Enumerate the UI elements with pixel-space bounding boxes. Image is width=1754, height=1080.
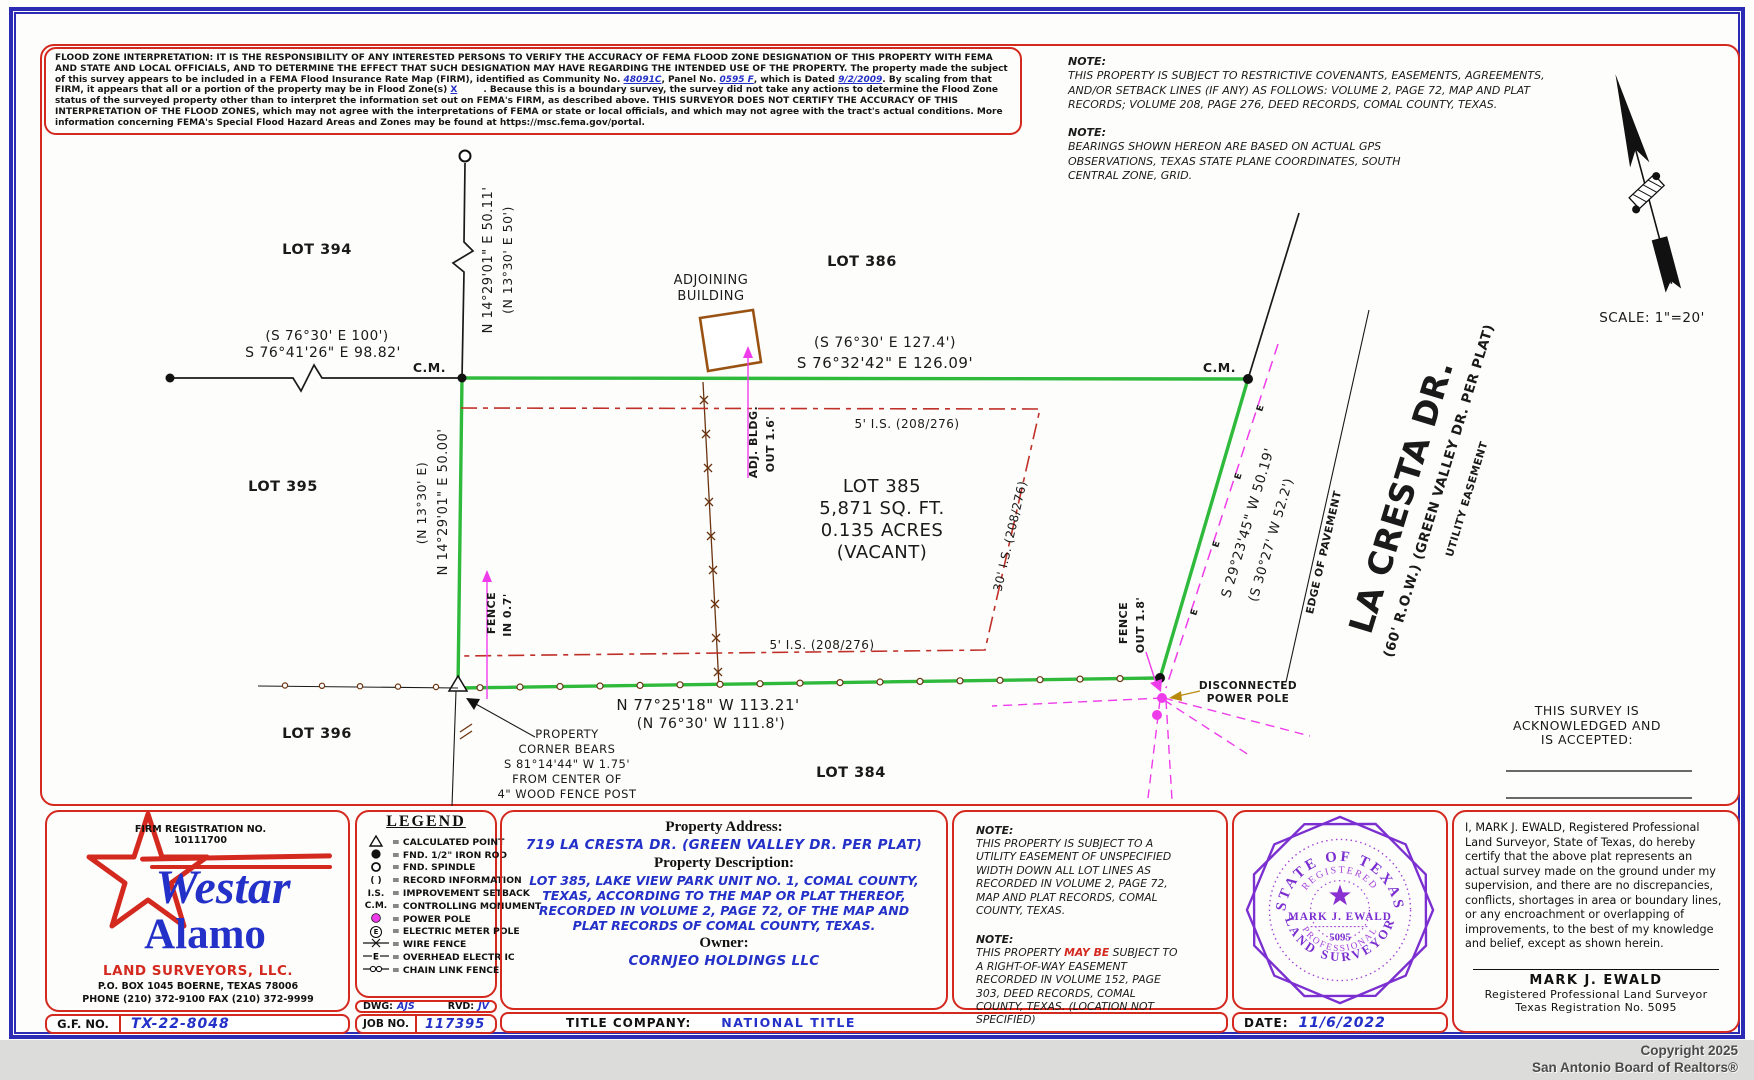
hash-marks <box>460 724 472 739</box>
corner-note-leader <box>474 703 535 737</box>
fence-out-leader <box>1146 652 1157 686</box>
fence-note: FENCE <box>485 592 498 634</box>
dwg-value: AJS <box>397 1001 415 1012</box>
corner-note: 4" WOOD FENCE POST <box>498 787 637 801</box>
title-company-value: NATIONAL TITLE <box>721 1015 856 1030</box>
north-stub-line <box>453 163 473 378</box>
surveyor-title: Registered Professional Land Surveyor <box>1465 988 1727 1001</box>
lot-label: LOT 386 <box>827 254 897 270</box>
corner-note: FROM CENTER OF <box>512 772 622 786</box>
acknowledged-label: THIS SURVEY IS <box>1534 703 1639 718</box>
adj-bldg-note: ADJ. BLDG. <box>747 406 760 478</box>
gf-number-strip: G.F. NO. TX-22-8048 <box>45 1014 350 1034</box>
surveyor-seal-icon: STATE OF TEXAS REGISTERED MARK J. EWALD … <box>1242 812 1438 1008</box>
owner-name: CORNJEO HOLDINGS LLC <box>514 953 934 969</box>
north-arrow-icon <box>1597 69 1691 295</box>
iron-rod-icon <box>458 374 467 383</box>
bearing-label: S 76°32'42" E 126.09' <box>797 354 973 372</box>
setback-label: 5' I.S. (208/276) <box>854 417 959 431</box>
setback-label: 5' I.S. (208/276) <box>769 638 874 652</box>
cm-label: C.M. <box>413 360 446 375</box>
survey-plat-page: FLOOD ZONE INTERPRETATION: IT IS THE RES… <box>0 0 1754 1080</box>
corner-note: PROPERTY <box>535 727 599 741</box>
bearing-label: (N 13°30' E) <box>414 462 429 544</box>
property-description: LOT 385, LAKE VIEW PARK UNIT NO. 1, COMA… <box>522 873 926 933</box>
fence-post-line <box>452 691 456 806</box>
adjoining-building-label: ADJOINING <box>674 273 749 288</box>
corner-note: S 81°14'44" W 1.75' <box>504 757 630 771</box>
certification-panel: I, MARK J. EWALD, Registered Professiona… <box>1452 810 1740 1033</box>
iron-rod-icon <box>166 374 175 383</box>
certification-text: I, MARK J. EWALD, Registered Professiona… <box>1465 821 1727 952</box>
lot-label: LOT 394 <box>282 242 352 258</box>
adjoining-building-outline <box>700 310 761 371</box>
cm-label: C.M. <box>1203 360 1236 375</box>
is-symbol: I.S. <box>360 889 392 899</box>
spindle-icon <box>360 861 392 876</box>
title-company-label: TITLE COMPANY: <box>566 1016 691 1030</box>
electric-mark: E <box>1211 540 1223 549</box>
date-label: DATE: <box>1244 1016 1289 1030</box>
property-address-label: Property Address: <box>514 819 934 836</box>
iron-rod-icon <box>1243 374 1253 384</box>
calculated-point-icon <box>449 676 467 691</box>
bearing-label: N 14°29'01" E 50.11' <box>481 187 496 334</box>
lot-label: LOT 395 <box>248 479 318 495</box>
power-pole-icon <box>1157 693 1167 703</box>
firm-name-1: Westar <box>98 864 348 912</box>
svg-text:MARK J. EWALD: MARK J. EWALD <box>1288 911 1392 923</box>
legend-item: = CHAIN LINK FENCE <box>360 964 496 977</box>
electric-meter-icon: E <box>360 926 392 938</box>
corner-note: CORNER BEARS <box>519 742 616 756</box>
wire-fence-marks <box>700 396 722 676</box>
property-info-panel: Property Address: 719 LA CRESTA DR. (GRE… <box>500 810 948 1010</box>
property-description-label: Property Description: <box>514 855 934 872</box>
rvd-value: JV <box>478 1001 489 1012</box>
firm-registration: FIRM REGISTRATION NO.10111700 <box>118 824 283 846</box>
chain-link-fence-icon <box>360 963 392 978</box>
bearing-label: N 14°29'01" E 50.00' <box>436 429 451 576</box>
row-easement-note: NOTE: THIS PROPERTY MAY BE SUBJECT TO A … <box>976 933 1180 1026</box>
legend-item: I.S.= IMPROVEMENT SETBACK <box>360 887 496 900</box>
utility-easement-note: NOTE: THIS PROPERTY IS SUBJECT TO A UTIL… <box>976 824 1180 917</box>
northeast-line <box>1248 213 1299 379</box>
arrowhead-icon <box>482 570 492 582</box>
job-label: JOB NO. <box>357 1016 417 1032</box>
dwg-label: DWG: <box>363 1001 393 1012</box>
wire-fence-line <box>703 382 719 686</box>
may-be-emphasis: MAY BE <box>1064 946 1109 959</box>
arrowhead-icon <box>466 698 480 710</box>
disconnected-pole-label: DISCONNECTED <box>1199 680 1297 692</box>
surveyor-signature-line <box>1473 969 1719 970</box>
bearing-label: (S 76°30' E 127.4') <box>814 335 956 351</box>
cm-symbol: C.M. <box>360 901 392 911</box>
surveyor-registration: Texas Registration No. 5095 <box>1465 1001 1727 1014</box>
subject-lot-label: LOT 385 <box>843 476 921 497</box>
electric-mark: E <box>1233 472 1245 481</box>
surveyor-name: MARK J. EWALD <box>1465 973 1727 988</box>
legend-rows: = CALCULATED POINT = FND. 1/2" IRON ROD … <box>360 836 496 977</box>
electric-mark: E <box>1189 608 1201 617</box>
firm-address: P.O. BOX 1045 BOERNE, TEXAS 78006 <box>58 981 338 992</box>
bearing-label: (N 13°30' E 50') <box>500 206 515 314</box>
bearing-label: (S 76°30' E 100') <box>265 328 388 344</box>
record-info-symbol: ( ) <box>360 876 392 886</box>
overhead-electric-line <box>1166 344 1278 688</box>
setback-label: 30' I.S. (208/276) <box>991 479 1030 592</box>
spindle-icon <box>460 151 471 162</box>
bearing-label: S 76°41'26" E 98.82' <box>245 345 401 361</box>
legend-item: ( )= RECORD INFORMATION <box>360 874 496 887</box>
fence-note: OUT 1.8' <box>1134 597 1147 653</box>
firm-tagline: LAND SURVEYORS, LLC. <box>58 963 338 979</box>
svg-text:5095: 5095 <box>1329 931 1351 943</box>
date-strip: DATE: 11/6/2022 <box>1232 1012 1448 1033</box>
power-pole-icon <box>1152 710 1162 720</box>
electric-mark: E <box>1255 404 1267 413</box>
bearing-label: (N 76°30' W 111.8') <box>637 716 786 732</box>
lot-label: LOT 396 <box>282 726 352 742</box>
svg-text:E: E <box>373 953 379 963</box>
job-value: 117395 <box>417 1017 495 1032</box>
date-value: 11/6/2022 <box>1299 1015 1386 1031</box>
legend-title: LEGEND <box>355 813 497 831</box>
firm-name-2: Alamo <box>80 912 330 958</box>
legend-item: = POWER POLE <box>360 913 496 926</box>
firm-phone: PHONE (210) 372-9100 FAX (210) 372-9999 <box>52 994 344 1005</box>
acknowledged-label: IS ACCEPTED: <box>1541 732 1633 747</box>
adj-bldg-note: OUT 1.6' <box>764 416 777 472</box>
rvd-label: RVD: <box>448 1001 474 1012</box>
job-number-strip: JOB NO. 117395 <box>355 1014 497 1034</box>
lot-area-label: 5,871 SQ. FT. <box>819 498 944 519</box>
drafting-strip: DWG:AJS RVD:JV <box>355 1000 497 1013</box>
power-pole-lines <box>992 698 1310 800</box>
owner-label: Owner: <box>514 935 934 952</box>
bearing-label: N 77°25'18" W 113.21' <box>616 696 799 714</box>
lot-status-label: (VACANT) <box>837 542 928 563</box>
property-address: 719 LA CRESTA DR. (GREEN VALLEY DR. PER … <box>514 837 934 853</box>
bottom-notes-panel: NOTE: THIS PROPERTY IS SUBJECT TO A UTIL… <box>952 810 1228 1010</box>
fence-note: FENCE <box>1117 602 1130 644</box>
copyright-notice: Copyright 2025San Antonio Board of Realt… <box>1532 1043 1738 1076</box>
gf-label: G.F. NO. <box>47 1016 121 1032</box>
acknowledged-label: ACKNOWLEDGED AND <box>1513 718 1661 733</box>
gf-value: TX-22-8048 <box>121 1016 348 1032</box>
lot-acres-label: 0.135 ACRES <box>821 520 944 541</box>
legend-item: = FND. SPINDLE <box>360 862 496 875</box>
fence-note: IN 0.7' <box>501 593 514 636</box>
seal-star-icon <box>1329 885 1351 906</box>
disconnected-pole-label: POWER POLE <box>1207 693 1290 705</box>
edge-of-pavement-label: EDGE OF PAVEMENT <box>1304 489 1344 615</box>
footer-strip <box>0 1040 1754 1080</box>
adjoining-building-label: BUILDING <box>677 289 744 304</box>
scale-label: SCALE: 1"=20' <box>1599 310 1705 326</box>
lot-label: LOT 384 <box>816 765 886 781</box>
power-pole-icon <box>360 912 392 927</box>
